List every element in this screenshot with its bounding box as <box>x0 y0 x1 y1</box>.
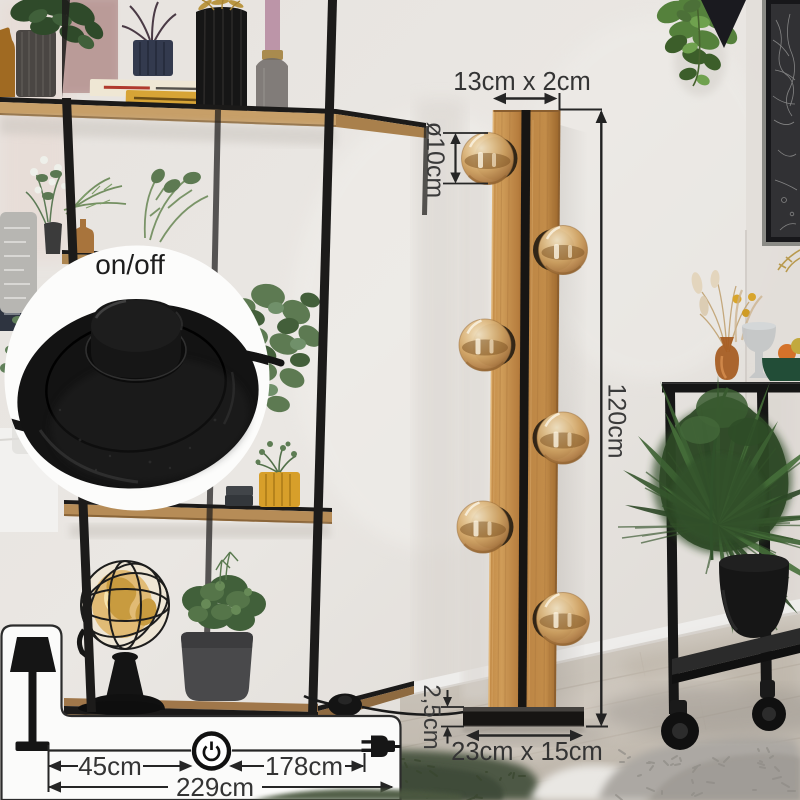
svg-text:on/off: on/off <box>95 249 165 280</box>
svg-text:120cm: 120cm <box>603 383 631 458</box>
svg-text:2,5cm: 2,5cm <box>418 684 445 749</box>
svg-text:178cm: 178cm <box>265 751 343 781</box>
svg-text:23cm x 15cm: 23cm x 15cm <box>451 738 603 766</box>
svg-text:45cm: 45cm <box>78 751 142 781</box>
svg-text:13cm x 2cm: 13cm x 2cm <box>453 68 590 96</box>
svg-text:229cm: 229cm <box>176 772 254 800</box>
